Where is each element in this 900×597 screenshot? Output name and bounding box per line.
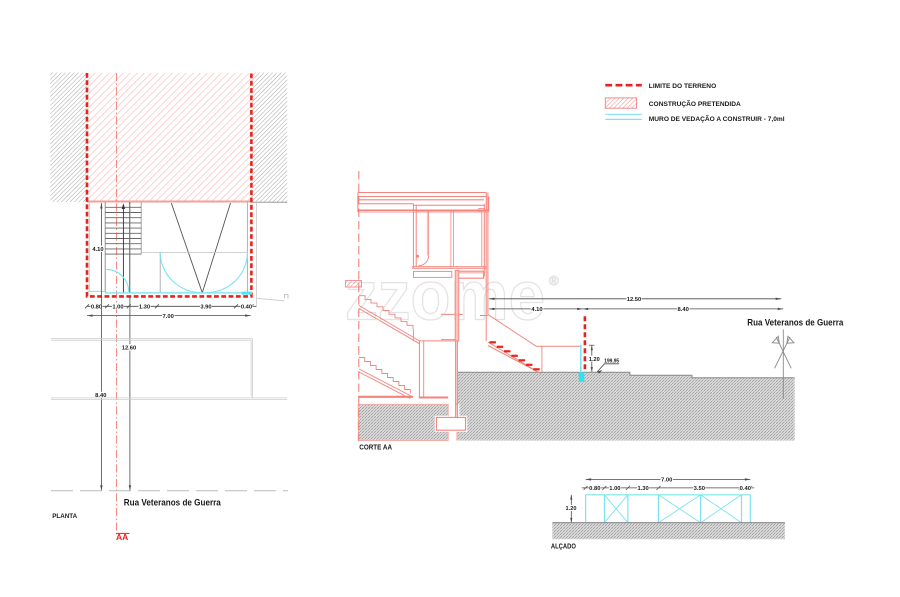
svg-text:4.10: 4.10 [92, 247, 103, 253]
svg-text:1.20: 1.20 [589, 357, 600, 363]
svg-text:MURO DE VEDAÇÃO A CONSTRUIR -: MURO DE VEDAÇÃO A CONSTRUIR - 7,0ml [649, 114, 785, 123]
svg-text:LIMITE DO TERRENO: LIMITE DO TERRENO [649, 83, 716, 90]
svg-text:7.00: 7.00 [163, 314, 174, 320]
svg-text:0.80: 0.80 [589, 486, 600, 492]
svg-text:3.90: 3.90 [200, 305, 211, 311]
svg-text:0.80: 0.80 [91, 305, 102, 311]
svg-text:Rua Veteranos de Guerra: Rua Veteranos de Guerra [124, 498, 221, 508]
svg-text:12.50: 12.50 [627, 297, 642, 303]
svg-text:4.10: 4.10 [531, 307, 542, 313]
svg-text:ALÇADO: ALÇADO [551, 544, 576, 551]
svg-text:7.00: 7.00 [661, 478, 672, 484]
svg-text:1.30: 1.30 [637, 486, 648, 492]
svg-text:CORTE AA: CORTE AA [359, 444, 392, 451]
svg-text:0.40: 0.40 [241, 305, 252, 311]
svg-text:1.00: 1.00 [609, 486, 620, 492]
svg-text:8.40: 8.40 [678, 307, 689, 313]
svg-text:1.30: 1.30 [139, 305, 150, 311]
svg-text:12.60: 12.60 [122, 346, 137, 352]
svg-text:1.00: 1.00 [112, 305, 123, 311]
svg-text:1.20: 1.20 [566, 506, 577, 512]
svg-text:CONSTRUÇÃO PRETENDIDA: CONSTRUÇÃO PRETENDIDA [649, 99, 741, 108]
svg-text:AA: AA [116, 532, 128, 542]
svg-text:Rua Veteranos de Guerra: Rua Veteranos de Guerra [747, 318, 843, 328]
svg-text:®: ® [549, 273, 559, 288]
svg-text:0.40: 0.40 [740, 486, 751, 492]
svg-text:3.50: 3.50 [694, 486, 705, 492]
svg-text:PLANTA: PLANTA [52, 513, 77, 520]
